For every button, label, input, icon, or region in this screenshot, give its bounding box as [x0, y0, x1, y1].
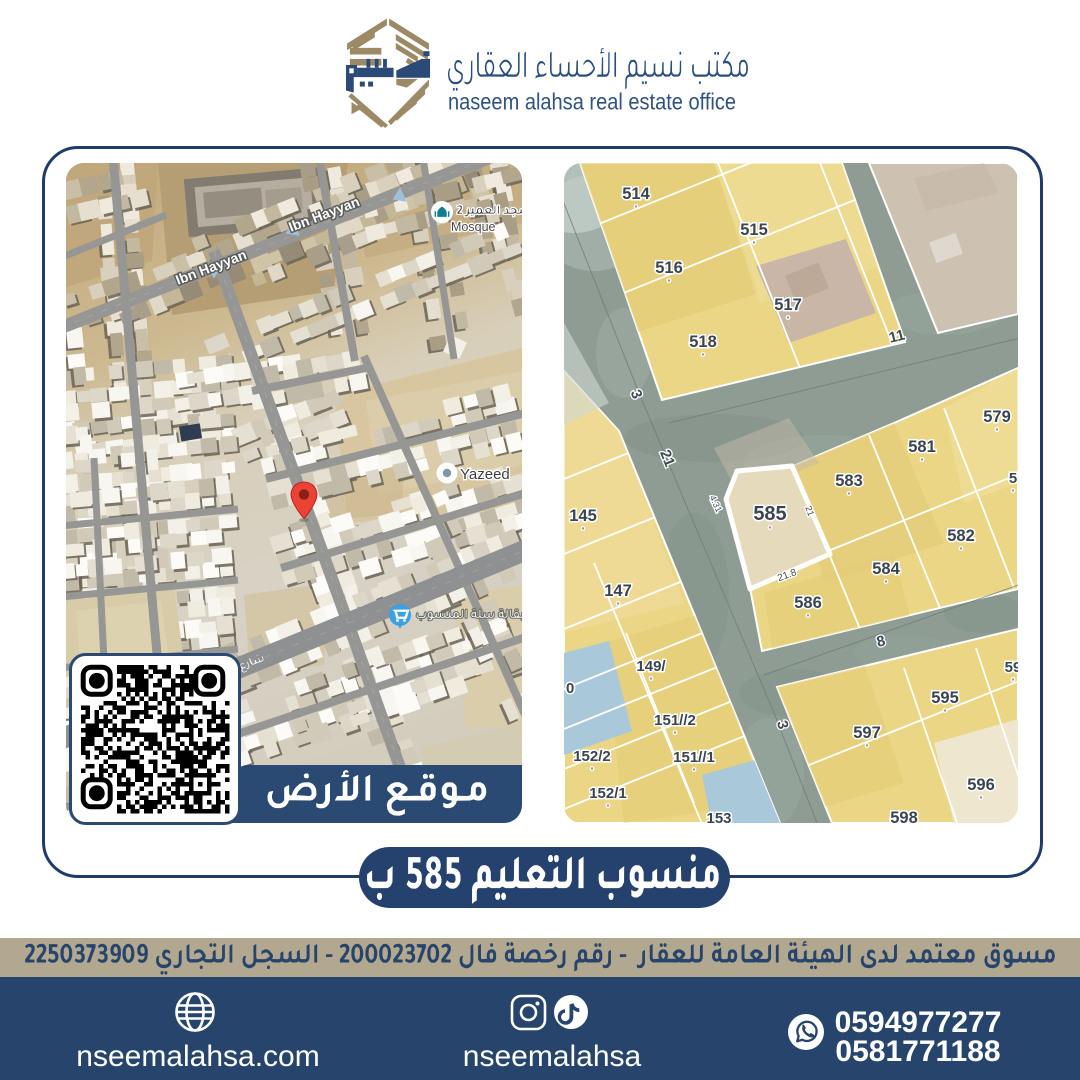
svg-text:nseemalahsa.com: nseemalahsa.com [76, 1040, 319, 1073]
svg-text:nseemalahsa: nseemalahsa [463, 1040, 642, 1073]
svg-text:0581771188: 0581771188 [835, 1035, 1000, 1068]
svg-text:naseem alahsa real estate offi: naseem alahsa real estate office [448, 89, 736, 115]
